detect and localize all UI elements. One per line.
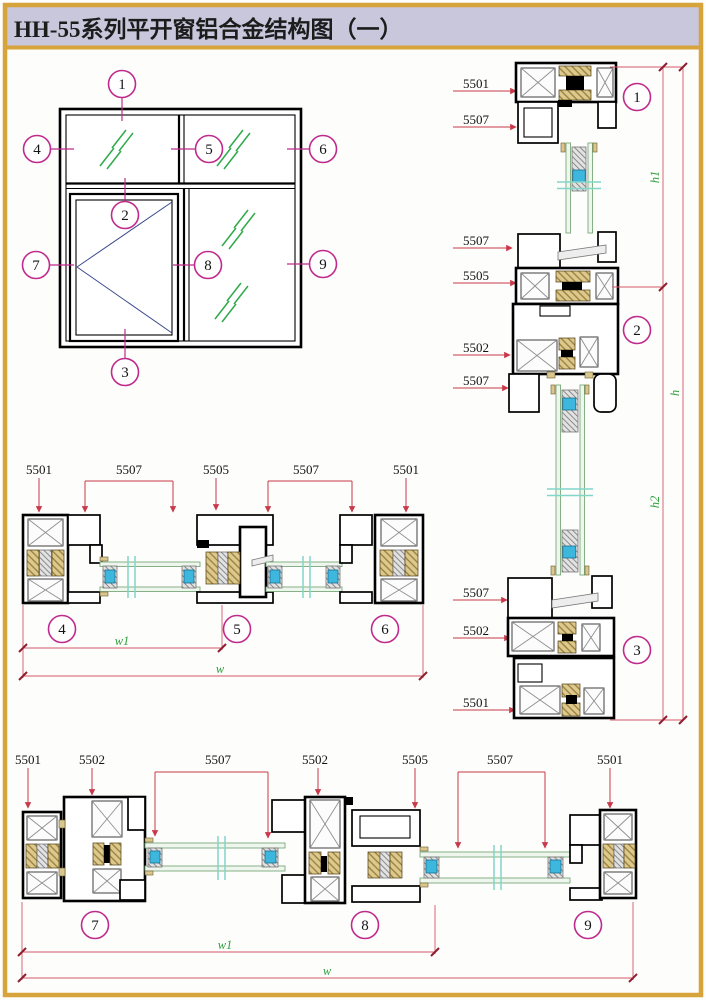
- glass-unit-horizontal-3: [145, 836, 285, 880]
- profile-label: 5501: [393, 462, 419, 477]
- spacer-block: [265, 851, 276, 863]
- profile-label: 5501: [463, 695, 489, 710]
- dim-label-w: w: [323, 964, 332, 978]
- callout-number: 2: [121, 208, 129, 224]
- spacer-block: [563, 398, 576, 410]
- profile-label: 5505: [402, 752, 428, 767]
- spacer-block: [105, 570, 115, 583]
- callout-number: 3: [633, 643, 641, 659]
- dim-label-h1: h1: [648, 171, 662, 184]
- spacer-block: [328, 570, 338, 583]
- profile-label: 5507: [463, 585, 490, 600]
- page-title: HH-55系列平开窗铝合金结构图（一）: [14, 16, 402, 42]
- profile-label: 5507: [463, 233, 490, 248]
- profile-label: 5501: [463, 76, 489, 91]
- callout-number: 2: [633, 323, 641, 339]
- spacer-block: [563, 546, 576, 558]
- callout-number: 9: [319, 257, 327, 273]
- section-head-frame: [516, 63, 616, 143]
- profile-label: 5501: [597, 752, 623, 767]
- profile-label: 5501: [26, 462, 52, 477]
- left-jamb-sash-section: [23, 797, 145, 901]
- center-sash-mullion-section: [272, 797, 420, 903]
- profile-label: 5505: [203, 462, 229, 477]
- height-dimensions: h1 h h2: [610, 63, 687, 724]
- callout-number: 7: [91, 918, 99, 934]
- glass-unit-horizontal-4: [420, 845, 570, 890]
- center-mullion-section: [197, 515, 273, 603]
- glass-unit-vertical-2: [547, 385, 593, 575]
- section-callouts: 4 5 6: [49, 616, 399, 643]
- callout-number: 8: [204, 258, 212, 274]
- label-leaders: [453, 91, 516, 710]
- label-leaders: [39, 478, 406, 512]
- section-sill: [508, 576, 614, 718]
- callout-number: 9: [584, 918, 592, 934]
- horizontal-section-bottom: 5501 5502 5507 5502 5505 5507 5501: [15, 752, 637, 982]
- callout-number: 5: [233, 622, 241, 638]
- left-jamb-section: [23, 515, 102, 603]
- glass-unit-horizontal-2: [266, 556, 342, 598]
- dim-label-h: h: [668, 390, 682, 396]
- profile-label: 5501: [15, 752, 41, 767]
- spacer-block: [573, 170, 585, 182]
- callout-number: 7: [32, 258, 40, 274]
- drawing-sheet: HH-55系列平开窗铝合金结构图（一）: [0, 0, 706, 1000]
- profile-label: 5505: [463, 268, 489, 283]
- dim-label-w: w: [216, 662, 225, 676]
- callout-number: 1: [118, 77, 126, 93]
- profile-label: 5507: [293, 462, 320, 477]
- width-dimensions: w1 w: [18, 902, 637, 982]
- callout-number: 3: [121, 365, 129, 381]
- profile-label: 5502: [302, 752, 328, 767]
- section-transom: [509, 232, 618, 412]
- profile-label: 5502: [463, 623, 489, 638]
- dim-label-w1: w1: [218, 938, 233, 952]
- right-jamb-section-2: [570, 810, 636, 900]
- callout-number: 4: [33, 142, 41, 158]
- vertical-section-column: 5501 5507 5507 5505 5502 5507 5507 5502 …: [453, 63, 687, 724]
- callout-number: 5: [205, 142, 213, 158]
- window-elevation: 1 2 3 4 5 6 7 8 9: [23, 71, 337, 386]
- width-dimensions: w1 w: [19, 605, 427, 680]
- cad-drawing: HH-55系列平开窗铝合金结构图（一）: [0, 0, 706, 1000]
- profile-label: 5507: [463, 112, 490, 127]
- callout-number: 6: [319, 142, 327, 158]
- profile-label: 5507: [463, 373, 490, 388]
- profile-label: 5502: [79, 752, 105, 767]
- horizontal-section-top: 5501 5507 5505 5507 5501: [19, 462, 427, 680]
- callout-number: 1: [633, 90, 641, 106]
- profile-label: 5507: [116, 462, 143, 477]
- glass-unit-vertical-1: [557, 143, 601, 233]
- section-callouts: 1 2 3: [624, 84, 651, 664]
- section-callouts: 7 8 9: [82, 912, 602, 939]
- right-jamb-section: [340, 515, 423, 603]
- spacer-block: [550, 860, 561, 873]
- profile-label: 5507: [487, 752, 514, 767]
- spacer-block: [150, 851, 160, 863]
- spacer-block: [426, 860, 437, 873]
- callout-number: 4: [58, 622, 66, 638]
- glass-unit-horizontal-1: [100, 556, 200, 598]
- spacer-block: [270, 570, 280, 583]
- callout-number: 6: [381, 622, 389, 638]
- dim-label-h2: h2: [648, 496, 662, 509]
- title-bar: HH-55系列平开窗铝合金结构图（一）: [6, 6, 700, 46]
- callout-number: 8: [361, 918, 369, 934]
- profile-label: 5507: [205, 752, 232, 767]
- dim-label-w1: w1: [115, 634, 130, 648]
- spacer-block: [184, 570, 194, 583]
- profile-label: 5502: [463, 340, 489, 355]
